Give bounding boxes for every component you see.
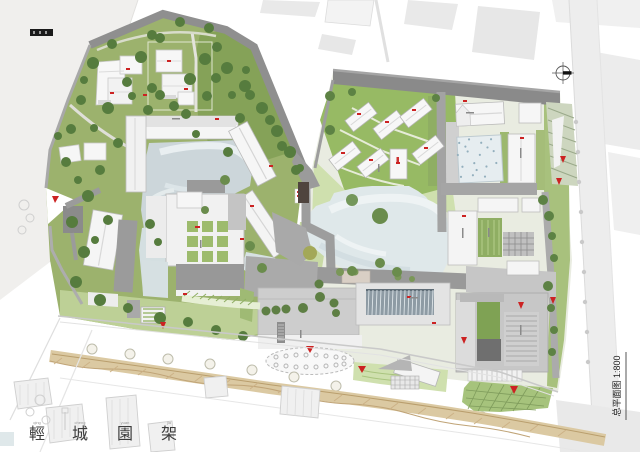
svg-text:jia: jia xyxy=(166,420,172,425)
svg-text:cheng: cheng xyxy=(75,420,86,425)
svg-text:園: 園 xyxy=(117,426,133,443)
svg-text:城: 城 xyxy=(72,425,88,443)
svg-text:輕: 輕 xyxy=(29,425,45,443)
svg-text:总平面图 1:800: 总平面图 1:800 xyxy=(611,355,622,416)
svg-text:qing: qing xyxy=(33,420,41,425)
svg-text:架: 架 xyxy=(161,425,177,443)
svg-text:yuan: yuan xyxy=(121,420,130,425)
